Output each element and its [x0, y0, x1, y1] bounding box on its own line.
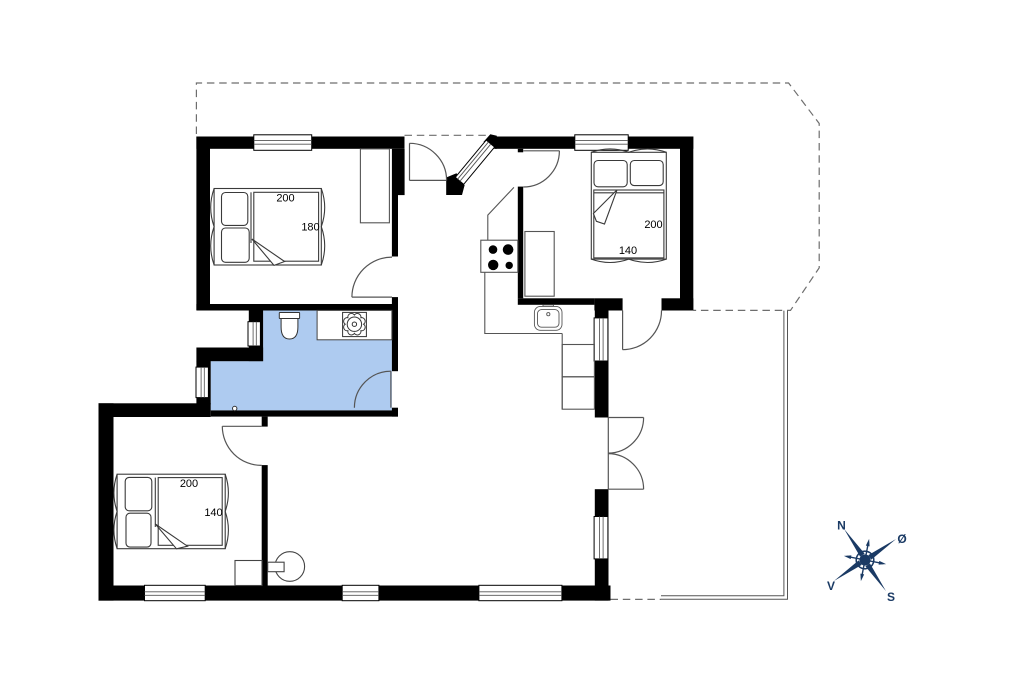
svg-text:N: N: [837, 519, 846, 533]
svg-text:200: 200: [644, 219, 662, 231]
svg-text:V: V: [827, 579, 835, 593]
svg-text:200: 200: [276, 193, 294, 205]
svg-text:Ø: Ø: [897, 532, 906, 546]
svg-text:S: S: [887, 590, 895, 604]
svg-text:180: 180: [301, 222, 319, 234]
svg-text:140: 140: [204, 507, 222, 519]
svg-text:200: 200: [180, 478, 198, 490]
svg-text:140: 140: [619, 245, 637, 257]
